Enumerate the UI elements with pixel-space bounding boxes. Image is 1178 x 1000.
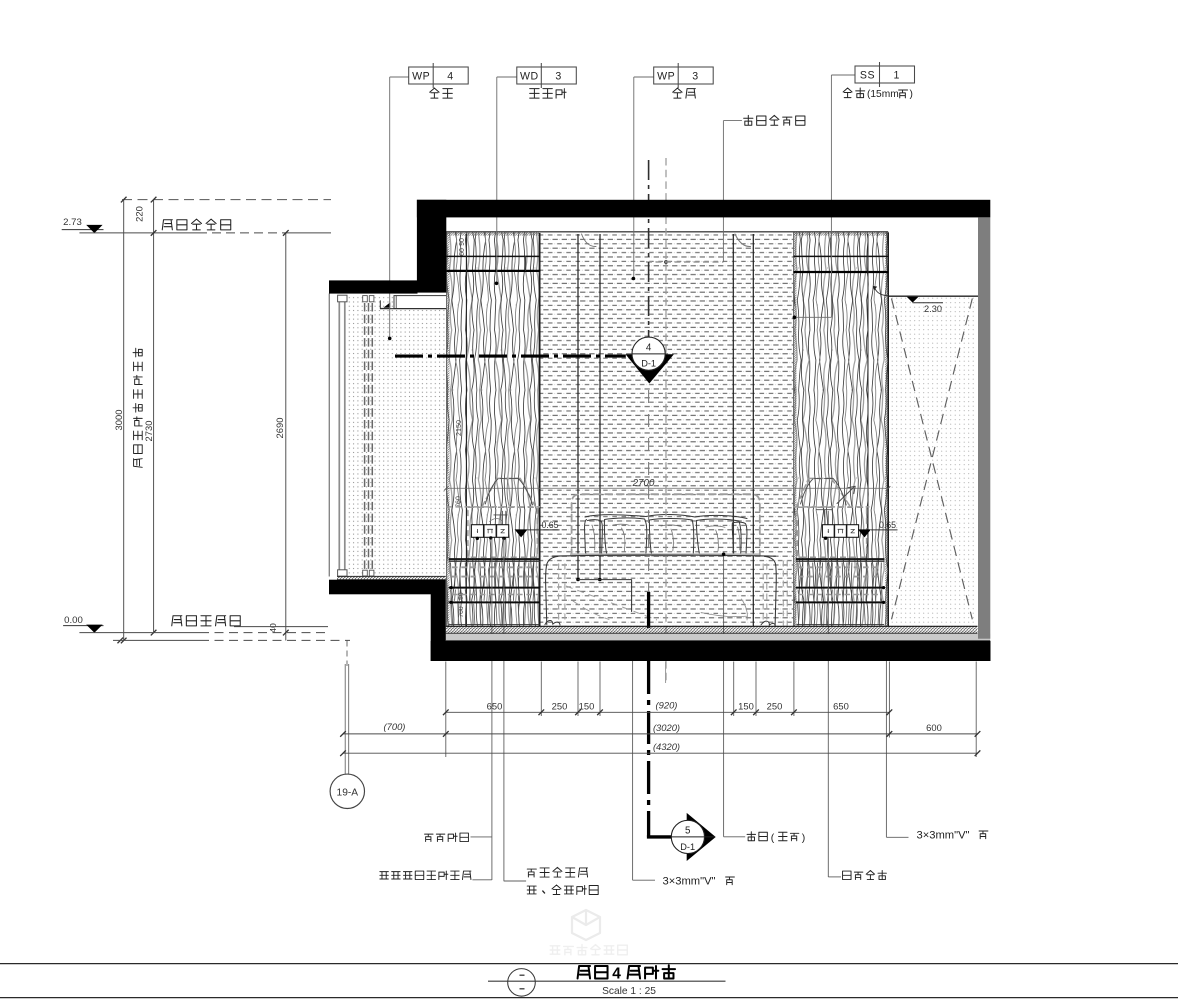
svg-text:90: 90 xyxy=(459,238,466,246)
svg-text:(700): (700) xyxy=(384,721,406,732)
svg-text:650: 650 xyxy=(833,700,849,711)
svg-text:(: ( xyxy=(771,832,775,844)
svg-text:(15mm: (15mm xyxy=(867,89,899,100)
svg-text:3×3mm"V": 3×3mm"V" xyxy=(662,876,715,888)
svg-text:3: 3 xyxy=(692,70,698,82)
svg-text:): ) xyxy=(910,89,913,100)
svg-text:60: 60 xyxy=(459,248,466,256)
svg-text:2700: 2700 xyxy=(632,478,655,489)
svg-text:2690: 2690 xyxy=(274,418,285,439)
svg-text:WP: WP xyxy=(412,70,430,82)
svg-text:2150: 2150 xyxy=(454,420,463,436)
svg-text:0.00: 0.00 xyxy=(64,615,83,626)
svg-text:250: 250 xyxy=(767,700,783,711)
svg-text:(3020): (3020) xyxy=(653,722,680,733)
svg-text:D-1: D-1 xyxy=(641,359,656,369)
svg-text:600: 600 xyxy=(926,722,942,733)
svg-text:(4320): (4320) xyxy=(653,741,680,752)
svg-text:(920): (920) xyxy=(656,700,678,711)
svg-text:40: 40 xyxy=(268,623,278,633)
svg-text:4: 4 xyxy=(612,966,621,983)
svg-text:D-1: D-1 xyxy=(680,842,695,852)
svg-text:2730: 2730 xyxy=(143,421,154,442)
svg-text:4: 4 xyxy=(447,70,453,82)
svg-text:2.30: 2.30 xyxy=(924,304,942,314)
svg-text:Scale 1 : 25: Scale 1 : 25 xyxy=(602,986,656,997)
svg-text:1: 1 xyxy=(894,69,900,81)
svg-text:150: 150 xyxy=(738,700,754,711)
svg-text:250: 250 xyxy=(552,700,568,711)
svg-text:3: 3 xyxy=(555,70,561,82)
svg-text:150: 150 xyxy=(579,700,595,711)
svg-text:SS: SS xyxy=(860,69,875,81)
svg-text:650: 650 xyxy=(487,700,503,711)
svg-text:3000: 3000 xyxy=(113,410,124,431)
svg-text:): ) xyxy=(802,832,806,844)
svg-text:3×3mm"V": 3×3mm"V" xyxy=(916,830,969,842)
svg-text:4: 4 xyxy=(646,343,652,354)
svg-text:WP: WP xyxy=(657,70,675,82)
svg-text:WD: WD xyxy=(520,70,539,82)
svg-text:5: 5 xyxy=(685,826,691,837)
svg-text:0.65: 0.65 xyxy=(879,520,896,530)
svg-text:220: 220 xyxy=(133,206,144,222)
svg-text:760: 760 xyxy=(456,496,463,508)
svg-text:0.65: 0.65 xyxy=(541,520,558,530)
svg-text:2.73: 2.73 xyxy=(63,217,82,228)
svg-text:19-A: 19-A xyxy=(337,788,359,799)
